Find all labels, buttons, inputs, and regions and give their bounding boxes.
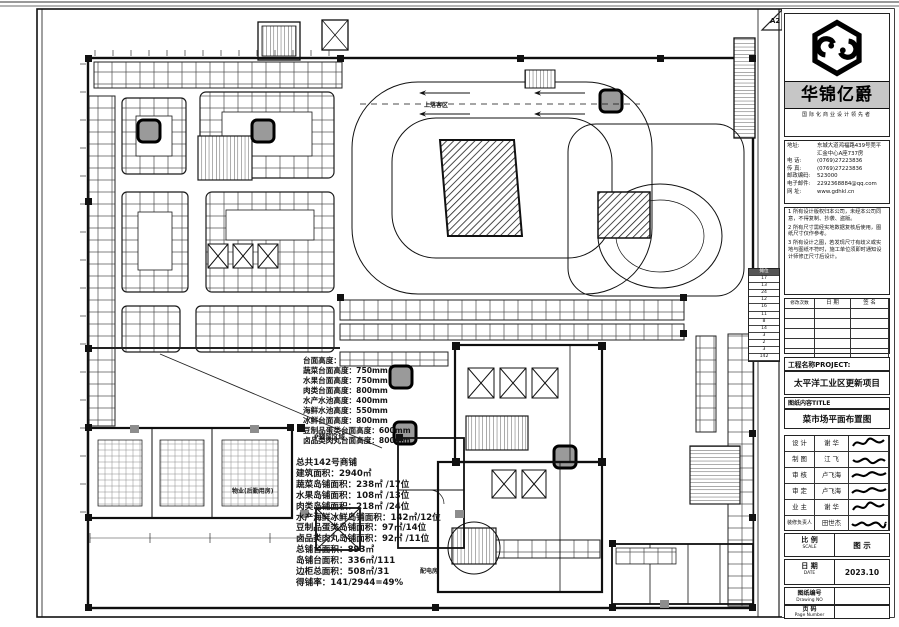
drawing-title: 菜市场平面布置图 <box>803 413 872 425</box>
dropoff-label: 上落客区 <box>424 100 448 109</box>
signature-scribble <box>850 468 888 482</box>
annotation-line: 边柜总面积：508㎡/31 <box>296 567 441 578</box>
date-label: 日 期 <box>785 560 834 571</box>
revision-cell <box>851 329 889 339</box>
postcode-value: 523000 <box>817 173 887 181</box>
stall-count-table: 摊位 17 13 24 12 16 11 8 14 3 2 3 142 <box>748 268 780 362</box>
postcode-label: 邮政编码: <box>787 173 817 181</box>
phone-label: 电 话: <box>787 158 817 166</box>
note-2: 2 所有尺寸需经实地数据复核后使用，图纸尺寸仅作参考。 <box>785 224 889 240</box>
annotation-line: 豆制品蛋类台面高度：600mm <box>303 426 411 436</box>
signature-row: 审 定 卢飞海 <box>785 484 889 500</box>
web-label: 网 址: <box>787 189 817 197</box>
revision-cell <box>851 309 889 319</box>
stall-count-row: 2 <box>749 340 779 347</box>
annotation-line: 蔬菜台面高度：750mm <box>303 366 411 376</box>
signature-name: 卢飞海 <box>815 468 849 483</box>
annotation-line: 卤品类肉丸岛铺面积：92㎡ /11位 <box>296 534 441 545</box>
drawing-no-label-en: Drawing NO <box>785 598 834 603</box>
project-label-box: 工程名称PROJECT: <box>784 357 890 371</box>
email-value: 2292368884@qq.com <box>817 181 887 189</box>
right-driveway <box>568 124 744 296</box>
note-1: 1 所有设计版权归本公司，未经本公司同意，不得复制、抄袭、盗版。 <box>785 208 889 224</box>
scale-label-en: SCALE <box>785 545 834 550</box>
content-label: 图纸内容TITLE <box>785 398 889 407</box>
sheet-size-text: A2 <box>770 17 780 25</box>
date-row: 日 期DATE 2023.10 <box>784 559 890 585</box>
revision-cell <box>785 309 815 319</box>
signature-role: 制 图 <box>785 452 815 467</box>
annotation-line: 台面高度： <box>303 356 411 366</box>
signature-name: 谢 华 <box>815 500 849 515</box>
revision-cell <box>785 329 815 339</box>
phone-value: (0769)27223836 <box>817 158 887 166</box>
brand-name: 华锦亿爵 <box>785 81 889 109</box>
page-no-value <box>835 606 889 618</box>
annotation-line: 肉类岛铺面积：218㎡ /24位 <box>296 502 441 513</box>
notes-box: 1 所有设计版权归本公司，未经本公司同意，不得复制、抄袭、盗版。 2 所有尺寸需… <box>784 207 890 295</box>
stall-count-row: 142 <box>749 354 779 361</box>
signature-role: 设 计 <box>785 436 815 451</box>
title-block: 华锦亿爵 国际化商业设计领先者 地址:东城大道鸿福路439号莞平 汇金中心A座7… <box>782 9 894 617</box>
shop-stats-annotation: 总共142号商铺 建筑面积：2940㎡ 蔬菜岛铺面积：238㎡ /17位 水果岛… <box>296 458 441 589</box>
annotation-line: 卤品类肉丸台面高度：800mm <box>303 436 411 446</box>
revision-cell <box>851 339 889 349</box>
stall-count-row: 3 <box>749 333 779 340</box>
annotation-line: 水产海鲜冰鲜岛铺面积：142㎡/12位 <box>296 513 441 524</box>
drawing-no-value <box>835 588 889 604</box>
annotation-line: 总铺台面积：893㎡ <box>296 545 441 556</box>
sheet-size-flag: A2 <box>760 8 784 32</box>
signature-role: 装修负责人 <box>785 516 815 531</box>
revision-col-header: 签 名 <box>851 299 889 309</box>
project-label: 工程名称PROJECT: <box>785 358 889 370</box>
annotation-line: 水果台面高度：750mm <box>303 376 411 386</box>
signature-row: 装修负责人 田世杰 <box>785 516 889 531</box>
scale-value: 图 示 <box>835 534 889 556</box>
revision-cell <box>815 329 851 339</box>
brand-tagline: 国际化商业设计领先者 <box>785 111 889 118</box>
annotation-line: 得铺率：141/2944=49% <box>296 578 441 589</box>
revision-cell <box>785 339 815 349</box>
revision-cell <box>815 319 851 329</box>
address-value: 东城大道鸿福路439号莞平 汇金中心A座737房 <box>817 143 887 158</box>
date-label-en: DATE <box>785 571 834 576</box>
signature-row: 设 计 谢 华 <box>785 436 889 452</box>
signature-name: 谢 华 <box>815 436 849 451</box>
drawing-no-label: 图纸编号 <box>785 588 834 598</box>
revision-col-header: 日 期 <box>815 299 851 309</box>
page-no-label-en: Page Number <box>785 613 834 618</box>
email-label: 电子邮件: <box>787 181 817 189</box>
signature-row: 审 核 卢飞海 <box>785 468 889 484</box>
stall-count-row: 8 <box>749 319 779 326</box>
signature-role: 审 定 <box>785 484 815 499</box>
web-value: www.gdhkl.cn <box>817 189 887 197</box>
revision-table: 修改次数 日 期 签 名 <box>784 298 890 354</box>
signature-scribble <box>850 516 888 530</box>
signature-name: 田世杰 <box>815 516 849 531</box>
annotation-line: 总共142号商铺 <box>296 458 441 469</box>
stall-count-row: 11 <box>749 312 779 319</box>
counter-heights-annotation: 台面高度： 蔬菜台面高度：750mm 水果台面高度：750mm 肉类台面高度：8… <box>303 356 411 446</box>
stall-count-row: 14 <box>749 326 779 333</box>
signature-name: 江 飞 <box>815 452 849 467</box>
page-no-label: 页 码 <box>785 606 834 613</box>
signature-scribble <box>850 484 888 498</box>
signature-name: 卢飞海 <box>815 484 849 499</box>
annotation-line: 建筑面积：2940㎡ <box>296 469 441 480</box>
annotation-line: 海鲜水池高度：550mm <box>303 406 411 416</box>
scale-row: 比 例SCALE 图 示 <box>784 533 890 557</box>
signature-scribble <box>850 436 888 450</box>
annotation-line: 冰鲜台面高度：800mm <box>303 416 411 426</box>
scale-label: 比 例 <box>785 534 834 545</box>
annotation-line: 蔬菜岛铺面积：238㎡ /17位 <box>296 480 441 491</box>
date-value: 2023.10 <box>835 560 889 584</box>
fax-value: (0769)27223836 <box>817 166 887 174</box>
revision-cell <box>815 309 851 319</box>
signature-role: 审 核 <box>785 468 815 483</box>
note-3: 3 所有设计之图，若发现尺寸有歧义或实地与图纸不符时，施工单位须即时通知设计师修… <box>785 239 889 261</box>
signature-scribble <box>850 500 888 514</box>
annotation-line: 肉类台面高度：800mm <box>303 386 411 396</box>
page-no-row: 页 码Page Number <box>784 605 890 619</box>
project-name: 太平洋工业区更新项目 <box>794 377 880 389</box>
contact-box: 地址:东城大道鸿福路439号莞平 汇金中心A座737房 电 话:(0769)27… <box>784 140 890 204</box>
revision-cell <box>785 319 815 329</box>
project-name-box: 太平洋工业区更新项目 <box>784 371 890 395</box>
seating-rooms <box>88 428 292 518</box>
annotation-line: 水产水池高度：400mm <box>303 396 411 406</box>
signature-row: 业 主 谢 华 <box>785 500 889 516</box>
drawing-title-box: 菜市场平面布置图 <box>784 409 890 429</box>
annotation-line: 水果岛铺面积：108㎡ /13位 <box>296 491 441 502</box>
revision-cell <box>851 319 889 329</box>
logo-box: 华锦亿爵 国际化商业设计领先者 <box>784 13 890 137</box>
drawing-sheet: 上落客区 P预留区域 物业(后勤用房) 配电房 台面高度： 蔬菜台面高度：750… <box>0 0 899 627</box>
revision-col-header: 修改次数 <box>785 299 815 309</box>
signature-row: 制 图 江 飞 <box>785 452 889 468</box>
content-label-box: 图纸内容TITLE <box>784 397 890 409</box>
address-label: 地址: <box>787 143 817 158</box>
drawing-no-row: 图纸编号Drawing NO <box>784 587 890 605</box>
annotation-line: 岛铺台面积：336㎡/111 <box>296 556 441 567</box>
logistics-label: 物业(后勤用房) <box>232 486 274 495</box>
signature-scribble <box>850 452 888 466</box>
hex-knot-logo-icon <box>808 19 866 77</box>
revision-cell <box>815 339 851 349</box>
signature-role: 业 主 <box>785 500 815 515</box>
signature-table: 设 计 谢 华 制 图 江 飞 审 核 卢飞海 审 定 卢飞海 业 主 <box>784 435 890 531</box>
stall-count-row: 16 <box>749 304 779 311</box>
annotation-line: 豆制品蛋类岛铺面积：97㎡/14位 <box>296 523 441 534</box>
